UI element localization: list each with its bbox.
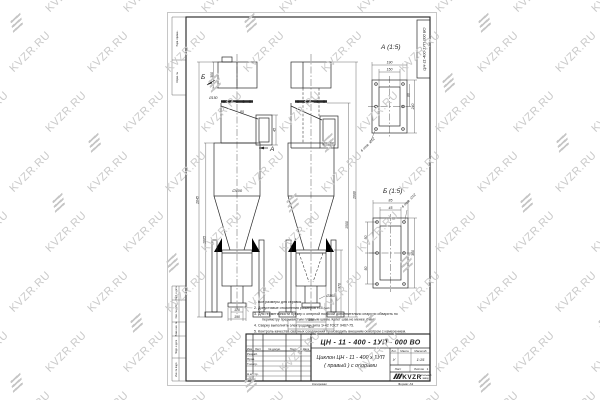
part-name-line1: Циклон ЦН - 11 - 400 х 1УП: [317, 355, 385, 361]
detail-a-flange: А (1:5) 190 150 240 80 6 отв. ∅12: [360, 44, 417, 153]
margin-label: Подп. и дата: [175, 339, 178, 354]
section-b-label: Б: [201, 74, 205, 81]
margin-label: Инв. № подл.: [175, 362, 178, 377]
format-label: Формат А3: [398, 382, 413, 386]
dim-label: 85: [389, 199, 393, 203]
dim-label: 1500: [345, 221, 349, 229]
margin-label: Перв. примен.: [176, 30, 179, 46]
view-a-label: А: [269, 146, 274, 153]
detail-b-title: Б (1:5): [383, 188, 402, 195]
title-block: Изм Лист № докум. Подп. Дата Разраб. Про…: [246, 334, 432, 381]
dim-label: 1065: [202, 236, 206, 244]
cyclone-front-view: Б 300 ∅150 85 45: [196, 54, 278, 321]
dim-label: ∅150: [209, 96, 218, 100]
hole-note: 6 отв. ∅12: [360, 137, 376, 153]
margin-label: Инв. № дубл.: [175, 303, 178, 318]
margin-label: Подп. и дата: [175, 286, 178, 301]
designation: ЦН - 11 - 400 - 1УП - 000 ВО: [320, 340, 420, 347]
dim-label: 2080: [353, 191, 357, 200]
logo-subtext: завод: [422, 377, 429, 380]
hole-note: 6 отв. ∅12: [401, 193, 417, 209]
detail-a-title: А (1:5): [380, 44, 401, 51]
dim-label: 370: [338, 283, 342, 289]
lit-header: Лит.: [391, 349, 396, 353]
scale-value: 1:15: [417, 357, 426, 362]
dim-label: 360: [411, 250, 415, 256]
dim-label: 300: [210, 72, 214, 78]
row-label: Утв.: [247, 377, 253, 381]
part-name-line2: ( правый ) с опорами: [324, 362, 377, 369]
row-label: Н.контр.: [247, 372, 259, 376]
dim-label: 45: [389, 206, 393, 210]
note-line: 5. Контроль качества сварных соединений …: [254, 330, 406, 334]
dim-label: ∅160: [326, 294, 335, 298]
row-label: Разраб.: [247, 352, 258, 356]
note-line: периметру прерывистым плотным швом. Кате…: [262, 318, 375, 322]
dim-label: 50: [364, 267, 368, 271]
note-line: 4. Сварку выполнять электродами типа Э-4…: [254, 324, 354, 328]
col-header: Изм: [247, 347, 252, 351]
note-line: 3. Для герметичности бункер с опорной по…: [254, 312, 398, 316]
scale-header: Масштаб: [415, 349, 427, 353]
kopiroval-label: Копировал: [312, 382, 327, 386]
margin-label: Взам. инв. №: [175, 321, 178, 336]
sheet-label: Лист: [395, 367, 402, 371]
detail-b-flange: Б (1:5) 85 45 50 50 360: [364, 188, 417, 292]
dim-label: 80: [406, 93, 410, 97]
col-header: № докум.: [268, 347, 281, 351]
notes-block: 1. Все размеры для справок. 2. Допустимы…: [254, 300, 406, 334]
dim-label: 240: [411, 104, 415, 111]
note-line: 1. Все размеры для справок.: [254, 300, 302, 304]
col-header: Подп.: [290, 347, 298, 351]
row-label: Пров.: [247, 357, 255, 361]
lit-value: У: [393, 357, 396, 362]
sheets-label: Листов: [414, 367, 424, 371]
note-line: 2. Допустимые отклонения размеров ±10 мм…: [254, 306, 330, 310]
col-header: Дата: [303, 347, 310, 351]
engineering-drawing: Подп. и дата Инв. № дубл. Взам. инв. № П…: [0, 0, 600, 400]
margin-label: Справ. №: [176, 72, 179, 83]
dim-label: ∅400: [232, 188, 243, 193]
mass-header: Масса: [400, 349, 409, 353]
sheets-value: 1: [427, 367, 429, 371]
dim-label: 85: [240, 110, 244, 114]
page: Подп. и дата Инв. № дубл. Взам. инв. № П…: [0, 0, 600, 400]
dim-label: 190: [234, 315, 240, 319]
dim-label: 45: [273, 128, 277, 132]
row-label: Т.контр.: [247, 362, 258, 366]
dim-label: 190: [387, 61, 393, 65]
stamp-designation-vertical: ЦН-11-400-1УП-000 ВО: [421, 27, 426, 70]
dim-label: 50: [364, 236, 368, 240]
dim-label: 2045: [196, 196, 200, 205]
cyclone-side-view: ∅160 А 370 1500 2080 390 410: [259, 54, 358, 331]
col-header: Лист: [255, 347, 262, 351]
dim-label: 150: [387, 68, 393, 72]
dim-label: 170: [234, 308, 240, 312]
